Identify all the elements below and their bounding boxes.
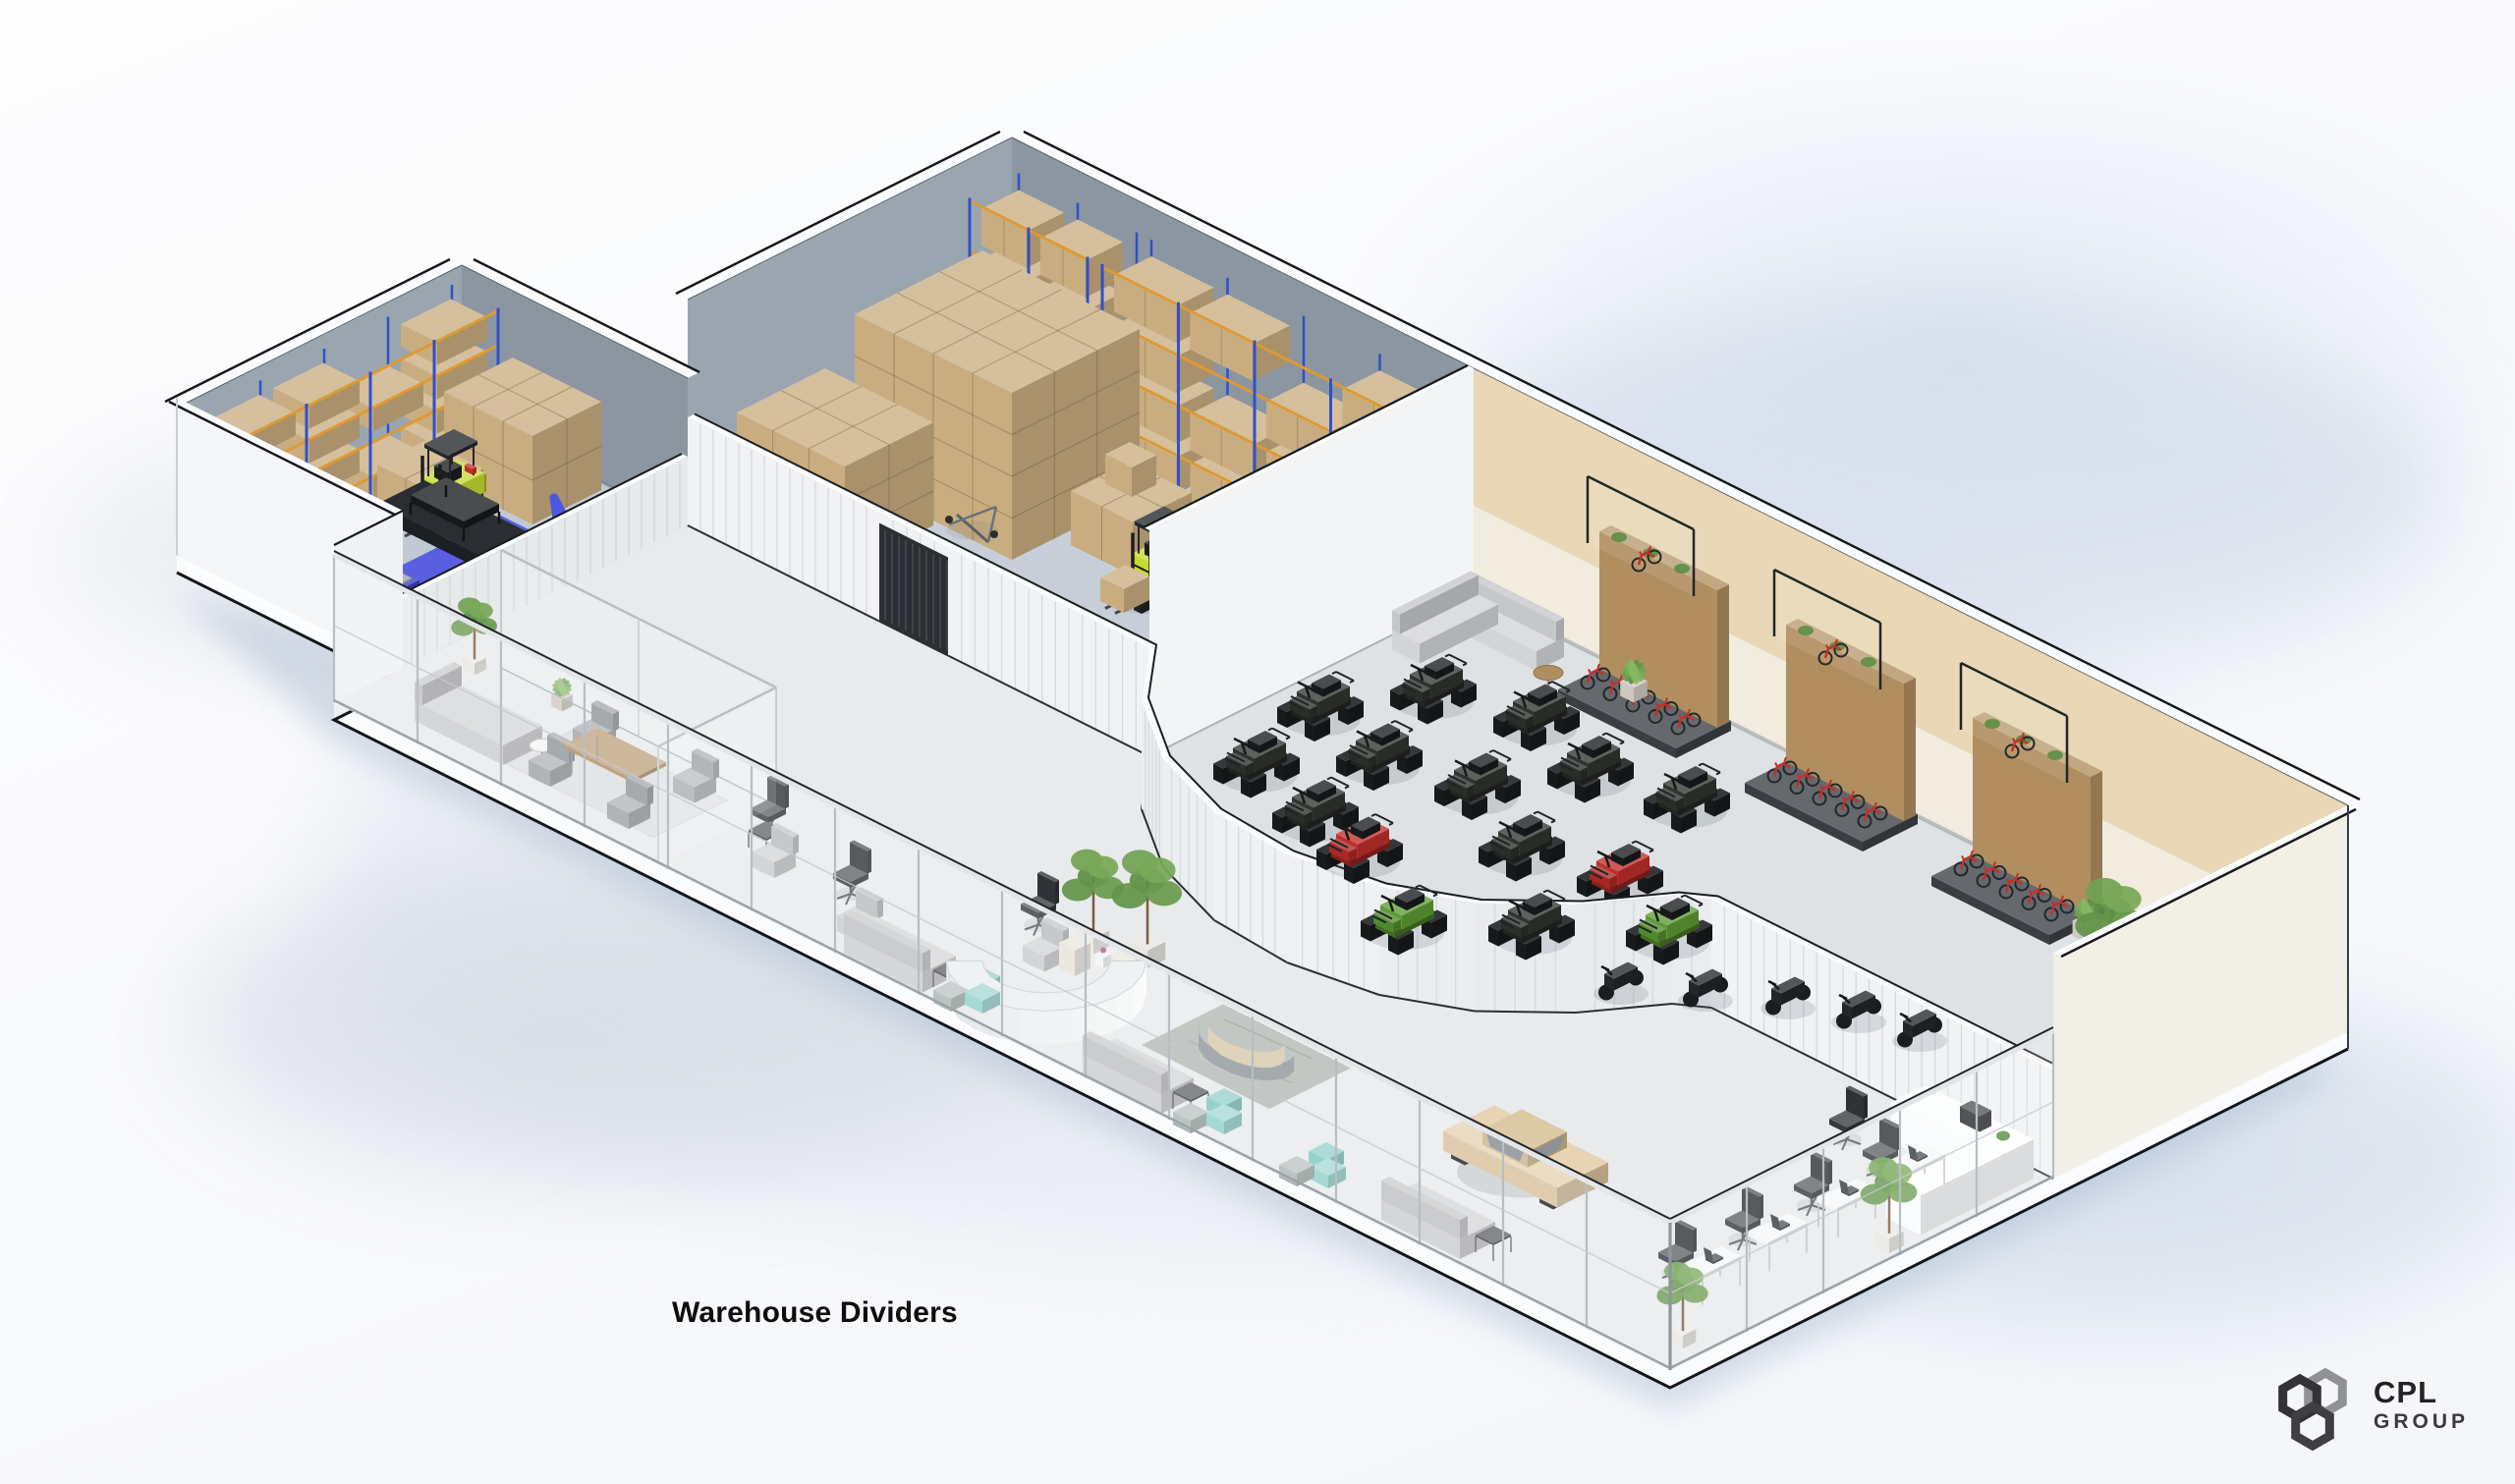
- isometric-warehouse-scene: Warehouse Dividers CPL GROUP: [0, 0, 2515, 1484]
- cpl-logo-hexagons: [2269, 1365, 2364, 1459]
- warehouse-3d-render: [0, 0, 2515, 1484]
- caption-title: Warehouse Dividers: [672, 1296, 958, 1330]
- logo-division-text: GROUP: [2374, 1410, 2469, 1434]
- logo-company-text: CPL: [2374, 1377, 2469, 1407]
- cpl-group-logo: CPL GROUP: [2269, 1365, 2469, 1459]
